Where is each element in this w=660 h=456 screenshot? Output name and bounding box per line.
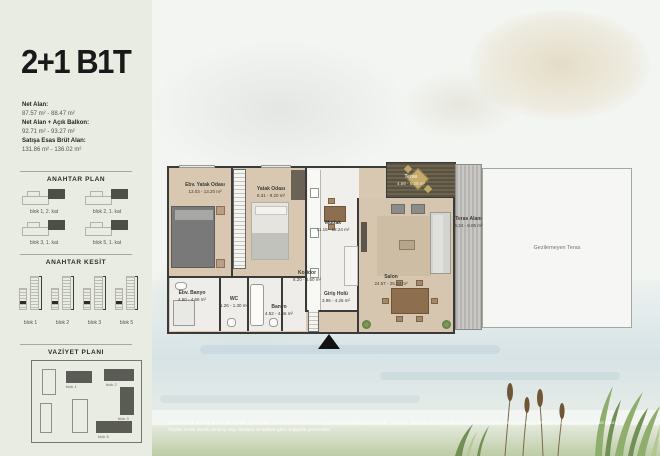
window xyxy=(179,165,215,168)
room-label-wc: WC 1.26 - 1.30 m² xyxy=(220,296,248,308)
site-block-filled xyxy=(96,421,132,433)
site-block-label: blok 2 xyxy=(106,382,117,387)
chair xyxy=(416,316,423,322)
key-plan-title: ANAHTAR PLAN xyxy=(20,176,132,183)
nightstand xyxy=(216,206,225,215)
non-walkable-terrace: Gezilemeyen Teras xyxy=(482,168,632,328)
area-value: 87.57 m² - 88.47 m² xyxy=(22,110,140,119)
chair xyxy=(431,298,438,304)
room-label-master-bedroom: Ebv. Yatak Odası 13.03 - 13.20 m² xyxy=(177,182,233,194)
site-plan-title: VAZİYET PLANI xyxy=(20,349,132,356)
sofa-cushions xyxy=(433,215,443,273)
bathtub xyxy=(250,284,264,326)
terrace-area-decking xyxy=(455,164,482,330)
brochure-page: 2+1 B1T Net Alan: 87.57 m² - 88.47 m² Ne… xyxy=(0,0,660,456)
toilet xyxy=(269,318,278,327)
room-label-entry-hall: Giriş Holü 3.96 - 4.26 m² xyxy=(317,291,355,303)
wall xyxy=(305,168,307,312)
watercolor-cloud xyxy=(400,70,520,140)
floor-plan: Gezilemeyen Teras xyxy=(165,160,635,360)
double-bed xyxy=(171,206,215,268)
tv-console xyxy=(361,222,367,252)
armchair xyxy=(411,204,425,214)
coffee-table xyxy=(399,240,415,250)
room-label-terrace: Teras 4.69 - 5.29 m² xyxy=(389,174,433,186)
room-label-kitchen: Mutfak 11.15 - 12.24 m² xyxy=(313,220,353,232)
key-plan-label: blok 5, 1. kat xyxy=(85,240,129,246)
key-section-thumbnail xyxy=(50,272,75,318)
highlighted-floor xyxy=(84,301,90,304)
blanket xyxy=(252,233,288,259)
chair xyxy=(416,280,423,286)
site-plan-box: blok 1 blok 2 blok 3 blok 5 xyxy=(31,360,142,443)
key-section-label: blok 2 xyxy=(50,320,75,326)
key-plan-label: blok 3, 1. kat xyxy=(22,240,66,246)
area-label: Satışa Esas Brüt Alan: xyxy=(22,137,140,146)
highlighted-unit xyxy=(48,189,65,199)
pillows xyxy=(175,210,213,220)
disclaimer-line: Ölçüler örnek olarak verilmiş olup, blok… xyxy=(168,426,648,433)
site-block-filled xyxy=(66,371,92,383)
divider xyxy=(20,254,132,255)
area-value: 92.71 m² - 93.27 m² xyxy=(22,128,140,137)
room-label-bedroom: Yatak Odası 8.31 - 9.20 m² xyxy=(249,186,293,198)
room-label-corridor: Koridor 6.20 - 6.50 m² xyxy=(285,270,329,282)
divider xyxy=(20,344,132,345)
chair xyxy=(328,198,335,204)
key-plan-thumbnail xyxy=(22,218,66,238)
site-block-label: blok 1 xyxy=(66,384,77,389)
unit-type-title: 2+1 B1T xyxy=(21,43,130,82)
water-stroke xyxy=(380,372,620,380)
chair xyxy=(382,298,389,304)
shower xyxy=(173,300,195,326)
kitchen-cabinet xyxy=(344,246,358,286)
key-section-thumbnail xyxy=(18,272,43,318)
sofa xyxy=(430,212,451,274)
armchair xyxy=(391,204,405,214)
key-plan-thumbnail xyxy=(85,187,129,207)
room-label-bathroom: Banyo 4.52 - 4.66 m² xyxy=(264,304,294,316)
site-block-filled xyxy=(120,387,134,415)
wardrobe xyxy=(233,169,246,269)
disclaimer-line: Örnek olarak alınmış bu kat planındaki d… xyxy=(168,419,648,426)
site-block-outline xyxy=(42,369,56,395)
key-plan-label: blok 1, 2. kat xyxy=(22,209,66,215)
entrance-arrow-icon xyxy=(318,334,340,349)
divider xyxy=(20,171,132,172)
room-label-master-bath: Ebv. Banyo 4.60 - 4.66 m² xyxy=(169,290,215,302)
info-panel: 2+1 B1T Net Alan: 87.57 m² - 88.47 m² Ne… xyxy=(0,0,152,456)
site-block-label: blok 5 xyxy=(98,434,109,439)
site-block-label: blok 3 xyxy=(118,416,129,421)
key-section-thumbnail xyxy=(114,272,139,318)
kitchen-counter xyxy=(308,170,321,310)
non-walkable-terrace-label: Gezilemeyen Teras xyxy=(534,245,581,251)
key-plan-label: blok 2, 1. kat xyxy=(85,209,129,215)
plant xyxy=(362,320,371,329)
key-section-label: blok 5 xyxy=(114,320,139,326)
highlighted-floor xyxy=(20,301,26,304)
highlighted-floor xyxy=(52,301,58,304)
washbasin xyxy=(175,282,187,290)
area-summary: Net Alan: 87.57 m² - 88.47 m² Net Alan +… xyxy=(22,101,140,155)
dining-table xyxy=(391,288,429,314)
stove-icon xyxy=(310,188,319,198)
key-plan-thumbnail xyxy=(22,187,66,207)
area-label: Net Alan + Açık Balkon: xyxy=(22,119,140,128)
footer-disclaimer: Örnek olarak alınmış bu kat planındaki d… xyxy=(168,419,648,434)
key-plan-thumbnail xyxy=(85,218,129,238)
key-section-label: blok 1 xyxy=(18,320,43,326)
highlighted-unit xyxy=(111,189,128,199)
plant xyxy=(442,320,451,329)
nightstand xyxy=(216,259,225,268)
site-block-outline xyxy=(72,399,88,433)
window xyxy=(261,165,291,168)
pillow xyxy=(255,206,287,215)
single-bed xyxy=(251,202,289,260)
watercolor-wash xyxy=(150,40,410,180)
wardrobe-dark xyxy=(291,170,305,200)
key-section-title: ANAHTAR KESİT xyxy=(20,259,132,266)
site-block-outline xyxy=(40,403,52,433)
toilet xyxy=(227,318,236,327)
site-block-filled xyxy=(104,369,134,381)
room-label-living-room: Salon 24.57 - 25.33 m² xyxy=(369,274,413,286)
room-label-terrace-area: Teras Alanı 6.24 - 8.05 m² xyxy=(452,216,485,228)
area-value: 131.86 m² - 136.02 m² xyxy=(22,146,140,155)
highlighted-unit xyxy=(48,220,65,230)
key-section-thumbnail xyxy=(82,272,107,318)
chair xyxy=(396,316,403,322)
water-stroke xyxy=(160,395,420,403)
highlighted-floor xyxy=(116,301,122,304)
highlighted-unit xyxy=(111,220,128,230)
key-section-label: blok 3 xyxy=(82,320,107,326)
area-label: Net Alan: xyxy=(22,101,140,110)
